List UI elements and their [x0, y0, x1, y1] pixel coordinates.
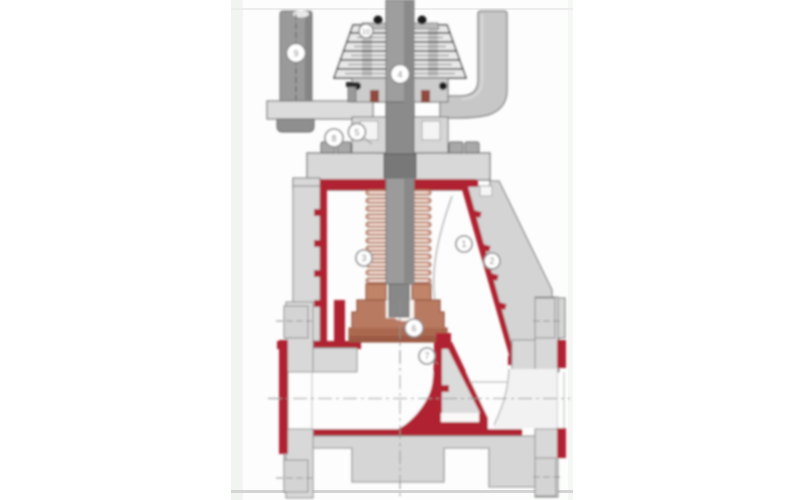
- svg-text:9: 9: [293, 49, 298, 59]
- svg-text:2: 2: [489, 256, 494, 266]
- svg-text:3: 3: [361, 253, 366, 263]
- svg-text:4: 4: [397, 70, 402, 80]
- svg-text:10: 10: [362, 29, 370, 36]
- svg-text:8: 8: [331, 134, 336, 144]
- svg-text:1: 1: [461, 239, 466, 249]
- svg-text:7: 7: [424, 351, 429, 361]
- svg-text:5: 5: [354, 128, 359, 138]
- svg-text:6: 6: [411, 324, 416, 334]
